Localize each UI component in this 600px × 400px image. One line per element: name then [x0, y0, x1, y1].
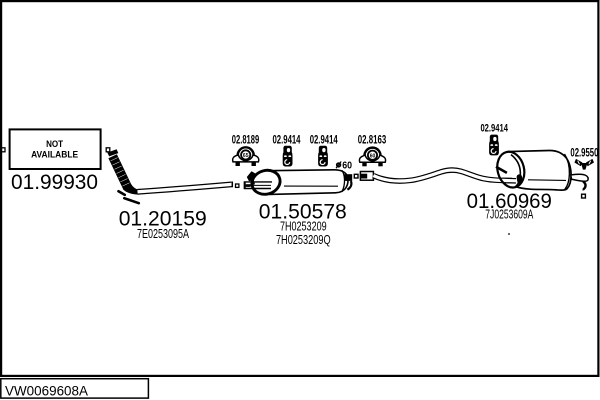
svg-text:02.8163: 02.8163	[358, 132, 387, 146]
svg-text:02.8189: 02.8189	[232, 132, 260, 146]
svg-text:AVAILABLE: AVAILABLE	[31, 150, 78, 161]
svg-text:7J0253609A: 7J0253609A	[485, 206, 533, 221]
svg-text:NOT: NOT	[46, 139, 63, 150]
svg-text:02.9414: 02.9414	[480, 123, 508, 135]
svg-text:60: 60	[370, 153, 376, 159]
svg-text:7E0253095A: 7E0253095A	[137, 226, 189, 241]
svg-text:02.9414: 02.9414	[310, 132, 338, 146]
svg-text:02.9550: 02.9550	[570, 147, 598, 159]
svg-text:7H0253209Q: 7H0253209Q	[276, 232, 331, 247]
svg-text:65: 65	[243, 153, 249, 159]
svg-text:02.9414: 02.9414	[273, 132, 301, 146]
svg-text:60: 60	[342, 160, 352, 171]
svg-text:VW0069608A: VW0069608A	[5, 382, 89, 398]
svg-text:01.99930: 01.99930	[11, 170, 98, 194]
